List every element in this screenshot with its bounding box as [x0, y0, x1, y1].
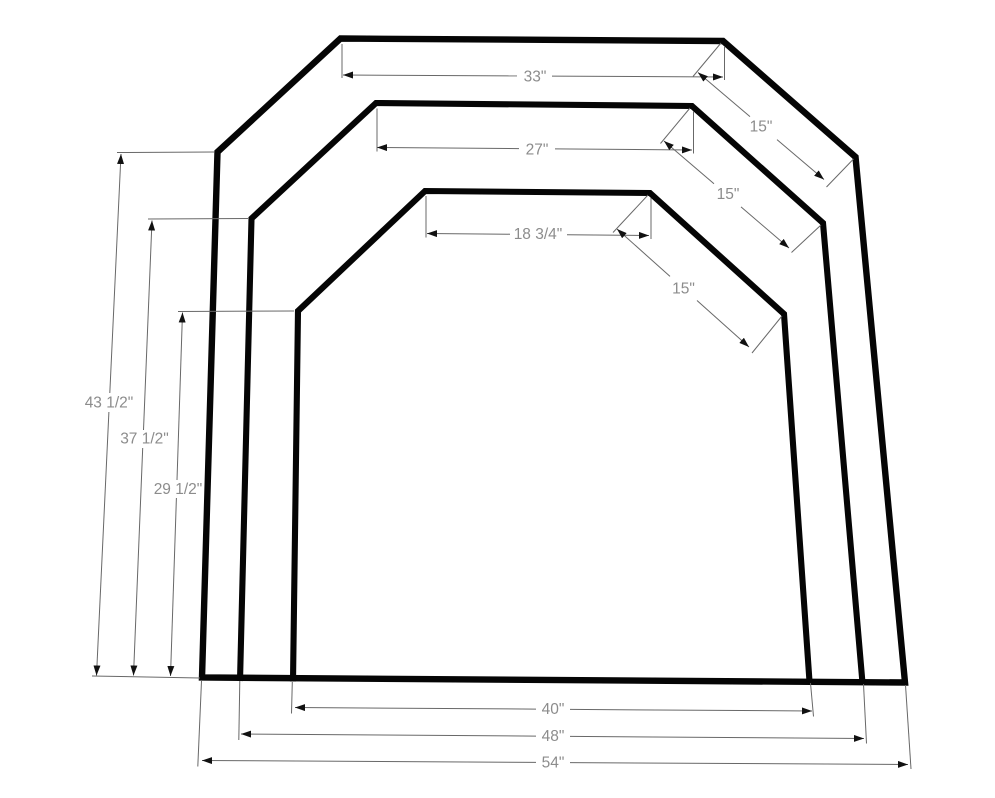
svg-text:27": 27"	[526, 141, 549, 158]
svg-text:54": 54"	[542, 754, 565, 771]
svg-text:15": 15"	[750, 118, 773, 135]
svg-text:33": 33"	[524, 69, 547, 86]
svg-text:48": 48"	[542, 728, 565, 745]
svg-text:37 1/2": 37 1/2"	[120, 431, 169, 448]
svg-text:15": 15"	[717, 186, 740, 203]
svg-text:29 1/2": 29 1/2"	[154, 481, 203, 498]
svg-text:18 3/4": 18 3/4"	[514, 226, 563, 243]
svg-text:15": 15"	[672, 280, 695, 297]
svg-text:43 1/2": 43 1/2"	[85, 394, 134, 411]
svg-text:40": 40"	[542, 701, 565, 718]
